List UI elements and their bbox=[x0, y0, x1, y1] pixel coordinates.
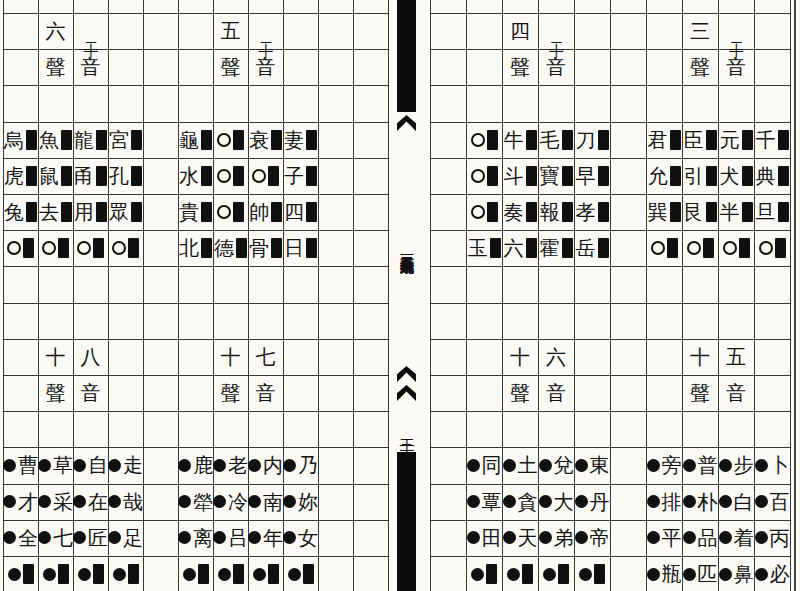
cell-character: 采 bbox=[53, 492, 73, 512]
table-cell: 在 bbox=[73, 484, 108, 520]
cell-character: 龍 bbox=[74, 130, 94, 150]
header-number: 四 bbox=[510, 21, 530, 41]
cell-character: 帥 bbox=[249, 202, 269, 222]
header-number: 五 bbox=[726, 347, 746, 367]
header-cell: 音 bbox=[248, 49, 283, 85]
cell-character: 允 bbox=[648, 166, 668, 186]
table-cell: 采 bbox=[38, 484, 73, 520]
tone-block bbox=[487, 202, 498, 222]
cell-character: 眾 bbox=[109, 202, 129, 222]
cell-character: 典 bbox=[756, 166, 776, 186]
cell-character: 自 bbox=[88, 455, 108, 475]
tone-block bbox=[598, 166, 609, 186]
table-cell: 臣 bbox=[682, 122, 718, 158]
filled-dot-icon bbox=[108, 531, 121, 544]
cell-character: 日 bbox=[284, 238, 304, 258]
table-cell bbox=[3, 556, 38, 591]
cell-character: 老 bbox=[228, 455, 248, 475]
cell-character: 用 bbox=[74, 202, 94, 222]
table-cell: 卜 bbox=[754, 447, 790, 483]
table-cell: 六 bbox=[502, 230, 538, 266]
table-cell bbox=[502, 556, 538, 591]
table-cell: 妳 bbox=[283, 484, 318, 520]
table-cell: 典 bbox=[754, 158, 790, 194]
header-cell: 十 bbox=[38, 339, 73, 375]
table-cell bbox=[213, 556, 248, 591]
header-label: 聲 bbox=[510, 383, 530, 403]
tone-block bbox=[233, 130, 244, 150]
table-cell bbox=[213, 122, 248, 158]
tone-block bbox=[93, 238, 104, 258]
table-cell: 内 bbox=[248, 447, 283, 483]
table-cell: 排 bbox=[646, 484, 682, 520]
tone-block bbox=[96, 202, 107, 222]
table-cell bbox=[682, 230, 718, 266]
tone-block bbox=[598, 238, 609, 258]
scanned-page: 永樂大典卷一萬三千六百二十九 三十 六聲十二音烏魚龍宮虎鼠甬孔兔去用眾五聲十二音… bbox=[0, 0, 800, 591]
filled-dot-icon bbox=[108, 459, 121, 472]
cell-character: 烏 bbox=[4, 130, 24, 150]
cell-character: 水 bbox=[179, 166, 199, 186]
tone-block bbox=[526, 202, 537, 222]
table-cell: 全 bbox=[3, 520, 38, 556]
cell-character: 同 bbox=[482, 455, 502, 475]
table-cell: 千 bbox=[754, 122, 790, 158]
cell-character: 艮 bbox=[684, 202, 704, 222]
filled-dot-icon bbox=[471, 568, 484, 581]
table-cell: 子 bbox=[283, 158, 318, 194]
cell-character: 瓶 bbox=[662, 564, 682, 584]
filled-dot-icon bbox=[683, 568, 696, 581]
empty-circle-icon bbox=[687, 241, 701, 255]
table-cell: 貴 bbox=[178, 194, 213, 230]
table-cell: 犖 bbox=[178, 484, 213, 520]
filled-dot-icon bbox=[73, 459, 86, 472]
cell-character: 霍 bbox=[540, 238, 560, 258]
table-cell bbox=[108, 556, 143, 591]
spine-bottom-bar bbox=[397, 452, 416, 591]
filled-dot-icon bbox=[647, 531, 660, 544]
cell-character: 龜 bbox=[179, 130, 199, 150]
table-cell: 半 bbox=[718, 194, 754, 230]
filled-dot-icon bbox=[755, 531, 768, 544]
tone-block bbox=[526, 238, 537, 258]
table-cell: 四 bbox=[283, 194, 318, 230]
cell-character: 衰 bbox=[249, 130, 269, 150]
table-cell bbox=[754, 230, 790, 266]
header-label: 音 bbox=[256, 57, 276, 77]
table-cell: 眾 bbox=[108, 194, 143, 230]
table-cell: 鹿 bbox=[178, 447, 213, 483]
empty-circle-icon bbox=[759, 241, 773, 255]
header-cell: 五 bbox=[718, 339, 754, 375]
table-cell bbox=[466, 122, 502, 158]
cell-character: 冷 bbox=[228, 492, 248, 512]
table-cell: 君 bbox=[646, 122, 682, 158]
tone-block bbox=[23, 238, 34, 258]
table-cell: 水 bbox=[178, 158, 213, 194]
table-cell: 土 bbox=[502, 447, 538, 483]
cell-character: 兔 bbox=[4, 202, 24, 222]
header-number: 六 bbox=[546, 347, 566, 367]
cell-character: 元 bbox=[720, 130, 740, 150]
cell-character: 平 bbox=[662, 528, 682, 548]
tone-block bbox=[670, 166, 681, 186]
table-cell: 帥 bbox=[248, 194, 283, 230]
empty-circle-icon bbox=[217, 133, 231, 147]
table-cell: 骨 bbox=[248, 230, 283, 266]
table-cell: 平 bbox=[646, 520, 682, 556]
cell-character: 大 bbox=[554, 492, 574, 512]
header-label: 聲 bbox=[221, 383, 241, 403]
cell-character: 六 bbox=[504, 238, 524, 258]
tone-block bbox=[487, 166, 498, 186]
cell-character: 甬 bbox=[74, 166, 94, 186]
table-cell: 艮 bbox=[682, 194, 718, 230]
filled-dot-icon bbox=[579, 568, 592, 581]
tone-block bbox=[562, 166, 573, 186]
filled-dot-icon bbox=[503, 459, 516, 472]
tone-block bbox=[778, 166, 789, 186]
tone-block bbox=[490, 238, 501, 258]
filled-dot-icon bbox=[719, 495, 732, 508]
table-cell: 鼠 bbox=[38, 158, 73, 194]
filled-dot-icon bbox=[503, 495, 516, 508]
cell-character: 排 bbox=[662, 492, 682, 512]
table-cell: 帝 bbox=[574, 520, 610, 556]
cell-character: 孝 bbox=[576, 202, 596, 222]
header-label: 聲 bbox=[690, 383, 710, 403]
tone-block bbox=[522, 564, 533, 584]
filled-dot-icon bbox=[253, 568, 266, 581]
table-cell: 霍 bbox=[538, 230, 574, 266]
header-cell: 十二 bbox=[73, 13, 108, 49]
tone-block bbox=[562, 238, 573, 258]
table-cell: 用 bbox=[73, 194, 108, 230]
tone-block bbox=[562, 130, 573, 150]
tone-block bbox=[128, 238, 139, 258]
table-cell: 犬 bbox=[718, 158, 754, 194]
tone-block bbox=[128, 564, 139, 584]
tone-block bbox=[61, 166, 72, 186]
header-cell: 音 bbox=[73, 49, 108, 85]
cell-character: 女 bbox=[298, 528, 318, 548]
cell-character: 骨 bbox=[249, 238, 269, 258]
cell-character: 百 bbox=[770, 492, 790, 512]
filled-dot-icon bbox=[647, 495, 660, 508]
table-cell: 女 bbox=[283, 520, 318, 556]
cell-character: 覃 bbox=[482, 492, 502, 512]
cell-character: 天 bbox=[518, 528, 538, 548]
tone-block bbox=[201, 166, 212, 186]
empty-circle-icon bbox=[217, 205, 231, 219]
cell-character: 臣 bbox=[684, 130, 704, 150]
table-cell bbox=[248, 158, 283, 194]
cell-character: 鹿 bbox=[193, 455, 213, 475]
table-cell: 匠 bbox=[73, 520, 108, 556]
filled-dot-icon bbox=[73, 531, 86, 544]
table-cell bbox=[538, 556, 574, 591]
table-cell bbox=[213, 158, 248, 194]
filled-dot-icon bbox=[283, 531, 296, 544]
filled-dot-icon bbox=[283, 459, 296, 472]
cell-character: 東 bbox=[590, 455, 610, 475]
table-cell: 巽 bbox=[646, 194, 682, 230]
cell-character: 德 bbox=[214, 238, 234, 258]
tone-block bbox=[26, 202, 37, 222]
table-cell: 元 bbox=[718, 122, 754, 158]
header-label: 音 bbox=[546, 57, 566, 77]
table-cell: 冷 bbox=[213, 484, 248, 520]
cell-character: 君 bbox=[648, 130, 668, 150]
filled-dot-icon bbox=[213, 459, 226, 472]
empty-circle-icon bbox=[42, 241, 56, 255]
cell-character: 丙 bbox=[770, 528, 790, 548]
table-cell: 着 bbox=[718, 520, 754, 556]
cell-character: 子 bbox=[284, 166, 304, 186]
empty-circle-icon bbox=[723, 241, 737, 255]
tone-block bbox=[778, 202, 789, 222]
tone-block bbox=[775, 238, 786, 258]
table-cell bbox=[73, 556, 108, 591]
table-cell: 龍 bbox=[73, 122, 108, 158]
cell-character: 离 bbox=[193, 528, 213, 548]
header-label: 音 bbox=[256, 383, 276, 403]
filled-dot-icon bbox=[575, 531, 588, 544]
tone-block bbox=[233, 166, 244, 186]
tone-block bbox=[268, 166, 279, 186]
table-cell: 覃 bbox=[466, 484, 502, 520]
cell-character: 白 bbox=[734, 492, 754, 512]
tone-block bbox=[306, 202, 317, 222]
table-cell: 允 bbox=[646, 158, 682, 194]
cell-character: 匹 bbox=[698, 564, 718, 584]
header-cell: 音 bbox=[538, 375, 574, 411]
header-label: 音 bbox=[81, 383, 101, 403]
table-cell: 天 bbox=[502, 520, 538, 556]
table-cell: 哉 bbox=[108, 484, 143, 520]
fishtail-icon bbox=[397, 385, 416, 401]
tone-block bbox=[131, 166, 142, 186]
cell-character: 旁 bbox=[662, 455, 682, 475]
header-number: 五 bbox=[221, 21, 241, 41]
table-cell: 北 bbox=[178, 230, 213, 266]
filled-dot-icon bbox=[38, 495, 51, 508]
filled-dot-icon bbox=[73, 495, 86, 508]
header-number: 十 bbox=[46, 347, 66, 367]
table-cell: 引 bbox=[682, 158, 718, 194]
table-cell: 田 bbox=[466, 520, 502, 556]
cell-character: 必 bbox=[770, 564, 790, 584]
cell-character: 北 bbox=[179, 238, 199, 258]
cell-character: 哉 bbox=[123, 492, 143, 512]
header-cell: 聲 bbox=[213, 375, 248, 411]
filled-dot-icon bbox=[503, 531, 516, 544]
filled-dot-icon bbox=[178, 495, 191, 508]
cell-character: 犬 bbox=[720, 166, 740, 186]
empty-circle-icon bbox=[217, 169, 231, 183]
table-cell bbox=[178, 556, 213, 591]
empty-circle-icon bbox=[471, 133, 485, 147]
header-number: 八 bbox=[81, 347, 101, 367]
table-cell: 毛 bbox=[538, 122, 574, 158]
filled-dot-icon bbox=[683, 531, 696, 544]
tone-block bbox=[706, 202, 717, 222]
tone-block bbox=[271, 238, 282, 258]
tone-block bbox=[26, 166, 37, 186]
table-cell bbox=[38, 556, 73, 591]
fishtail-icon bbox=[397, 366, 416, 382]
header-cell: 音 bbox=[248, 375, 283, 411]
cell-character: 早 bbox=[576, 166, 596, 186]
cell-character: 兌 bbox=[554, 455, 574, 475]
table-cell: 匹 bbox=[682, 556, 718, 591]
tone-block bbox=[306, 130, 317, 150]
table-cell bbox=[108, 230, 143, 266]
cell-character: 四 bbox=[284, 202, 304, 222]
header-cell: 十 bbox=[213, 339, 248, 375]
table-cell: 白 bbox=[718, 484, 754, 520]
table-cell: 兌 bbox=[538, 447, 574, 483]
filled-dot-icon bbox=[8, 568, 21, 581]
cell-character: 丹 bbox=[590, 492, 610, 512]
cell-character: 才 bbox=[18, 492, 38, 512]
table-cell bbox=[646, 230, 682, 266]
cell-character: 報 bbox=[540, 202, 560, 222]
header-label: 聲 bbox=[221, 57, 241, 77]
tone-block bbox=[201, 202, 212, 222]
tone-block bbox=[96, 130, 107, 150]
filled-dot-icon bbox=[467, 495, 480, 508]
cell-character: 朴 bbox=[698, 492, 718, 512]
cell-character: 犖 bbox=[193, 492, 213, 512]
table-cell: 自 bbox=[73, 447, 108, 483]
table-cell: 衰 bbox=[248, 122, 283, 158]
cell-character: 内 bbox=[263, 455, 283, 475]
empty-circle-icon bbox=[252, 169, 266, 183]
tone-block bbox=[131, 202, 142, 222]
tone-block bbox=[526, 166, 537, 186]
cell-character: 妳 bbox=[298, 492, 318, 512]
table-cell: 年 bbox=[248, 520, 283, 556]
filled-dot-icon bbox=[178, 459, 191, 472]
filled-dot-icon bbox=[213, 495, 226, 508]
empty-circle-icon bbox=[112, 241, 126, 255]
empty-circle-icon bbox=[471, 205, 485, 219]
header-cell: 三 bbox=[682, 13, 718, 49]
filled-dot-icon bbox=[183, 568, 196, 581]
filled-dot-icon bbox=[543, 568, 556, 581]
filled-dot-icon bbox=[248, 531, 261, 544]
cell-character: 牛 bbox=[504, 130, 524, 150]
cell-character: 妻 bbox=[284, 130, 304, 150]
header-cell: 十二 bbox=[718, 13, 754, 49]
cell-character: 年 bbox=[263, 528, 283, 548]
filled-dot-icon bbox=[213, 531, 226, 544]
cell-character: 普 bbox=[698, 455, 718, 475]
table-cell bbox=[248, 556, 283, 591]
tone-block bbox=[96, 166, 107, 186]
spine-column: 永樂大典卷一萬三千六百二十九 三十 bbox=[397, 0, 416, 591]
cell-character: 貪 bbox=[518, 492, 538, 512]
table-cell: 龜 bbox=[178, 122, 213, 158]
tone-block bbox=[306, 238, 317, 258]
tone-block bbox=[201, 238, 212, 258]
header-cell: 聲 bbox=[38, 375, 73, 411]
cell-character: 魚 bbox=[39, 130, 59, 150]
header-cell: 聲 bbox=[502, 49, 538, 85]
header-cell: 八 bbox=[73, 339, 108, 375]
cell-character: 南 bbox=[263, 492, 283, 512]
cell-character: 毛 bbox=[540, 130, 560, 150]
table-cell bbox=[718, 230, 754, 266]
cell-character: 步 bbox=[734, 455, 754, 475]
empty-circle-icon bbox=[651, 241, 665, 255]
table-cell: 兔 bbox=[3, 194, 38, 230]
filled-dot-icon bbox=[108, 495, 121, 508]
tone-block bbox=[703, 238, 714, 258]
filled-dot-icon bbox=[575, 459, 588, 472]
table-cell bbox=[3, 230, 38, 266]
table-cell: 弟 bbox=[538, 520, 574, 556]
header-cell: 十 bbox=[502, 339, 538, 375]
tone-block bbox=[271, 130, 282, 150]
header-number: 六 bbox=[46, 21, 66, 41]
table-cell bbox=[574, 556, 610, 591]
table-cell: 旦 bbox=[754, 194, 790, 230]
tone-block bbox=[303, 564, 314, 584]
header-cell: 十二 bbox=[248, 13, 283, 49]
cell-character: 土 bbox=[518, 455, 538, 475]
spine-volume-title: 永樂大典卷一萬三千六百二十九 bbox=[397, 134, 416, 360]
table-cell: 离 bbox=[178, 520, 213, 556]
table-cell bbox=[466, 194, 502, 230]
cell-character: 奏 bbox=[504, 202, 524, 222]
table-cell bbox=[38, 230, 73, 266]
tone-block bbox=[594, 564, 605, 584]
tone-block bbox=[667, 238, 678, 258]
header-cell: 聲 bbox=[502, 375, 538, 411]
header-cell: 音 bbox=[718, 375, 754, 411]
header-cell: 聲 bbox=[682, 49, 718, 85]
filled-dot-icon bbox=[43, 568, 56, 581]
table-cell: 魚 bbox=[38, 122, 73, 158]
filled-dot-icon bbox=[539, 531, 552, 544]
header-number: 十 bbox=[690, 347, 710, 367]
filled-dot-icon bbox=[178, 531, 191, 544]
header-number: 七 bbox=[256, 347, 276, 367]
cell-character: 去 bbox=[39, 202, 59, 222]
tone-block bbox=[93, 564, 104, 584]
header-cell: 五 bbox=[213, 13, 248, 49]
table-cell: 朴 bbox=[682, 484, 718, 520]
filled-dot-icon bbox=[3, 495, 16, 508]
cell-character: 田 bbox=[482, 528, 502, 548]
filled-dot-icon bbox=[283, 495, 296, 508]
tone-block bbox=[778, 130, 789, 150]
cell-character: 貴 bbox=[179, 202, 199, 222]
filled-dot-icon bbox=[539, 495, 552, 508]
table-cell: 七 bbox=[38, 520, 73, 556]
cell-character: 旦 bbox=[756, 202, 776, 222]
cell-character: 鼠 bbox=[39, 166, 59, 186]
header-cell: 音 bbox=[73, 375, 108, 411]
table-cell: 老 bbox=[213, 447, 248, 483]
table-cell: 孝 bbox=[574, 194, 610, 230]
filled-dot-icon bbox=[719, 568, 732, 581]
cell-character: 岳 bbox=[576, 238, 596, 258]
table-cell: 報 bbox=[538, 194, 574, 230]
